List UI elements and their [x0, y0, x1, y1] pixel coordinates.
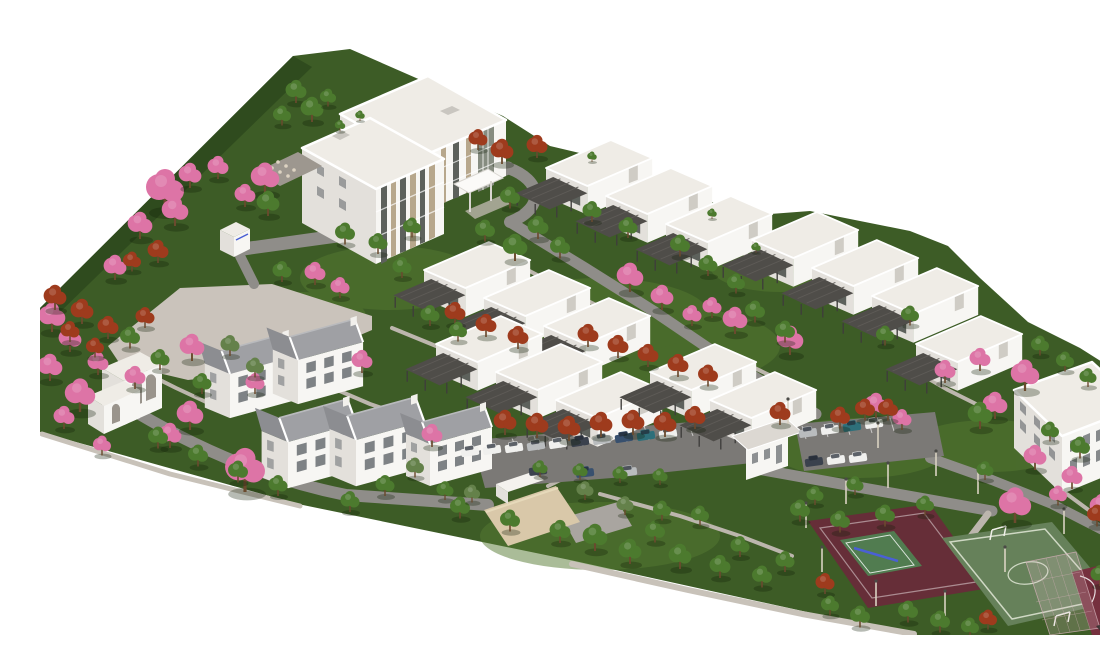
tree — [527, 135, 548, 163]
aerial-render-canvas — [40, 16, 1100, 635]
site-plan-render — [40, 16, 1100, 635]
